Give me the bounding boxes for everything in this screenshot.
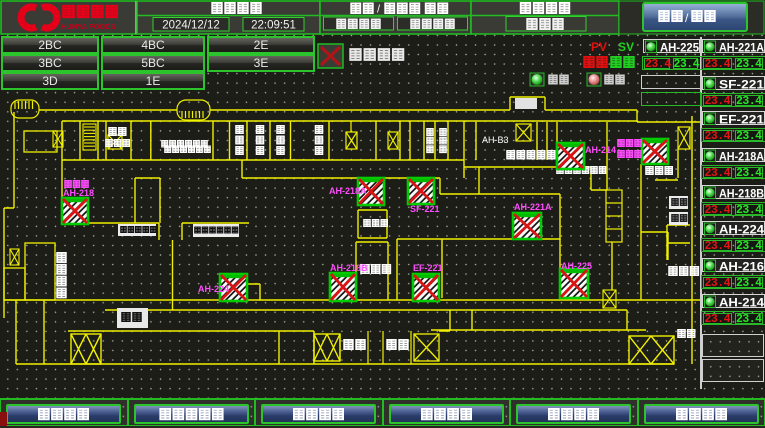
svg-text:AH-224: AH-224 xyxy=(198,284,229,294)
svg-text:SF-221: SF-221 xyxy=(719,80,765,92)
svg-text:AH-B3: AH-B3 xyxy=(482,135,509,145)
svg-text:AH-218B: AH-218B xyxy=(330,263,368,273)
svg-text:AH-225: AH-225 xyxy=(660,43,700,55)
svg-text:AH-218A: AH-218A xyxy=(719,152,764,164)
svg-text:AH-218A: AH-218A xyxy=(329,186,367,196)
svg-text:AH-224: AH-224 xyxy=(719,225,765,237)
svg-text:AH-221A: AH-221A xyxy=(514,202,552,212)
svg-text:AH-218B: AH-218B xyxy=(719,189,764,201)
svg-text:AH-225: AH-225 xyxy=(561,261,592,271)
svg-text:EF-221: EF-221 xyxy=(719,115,765,127)
svg-text:AH-216: AH-216 xyxy=(719,262,764,274)
svg-text:AH-214: AH-214 xyxy=(585,145,616,155)
svg-text:AH-214: AH-214 xyxy=(719,298,765,310)
svg-text:EF-221: EF-221 xyxy=(413,263,443,273)
svg-text:AH-221A: AH-221A xyxy=(719,43,764,55)
svg-text:AH-218: AH-218 xyxy=(63,188,94,198)
svg-text:SF-221: SF-221 xyxy=(410,204,440,214)
